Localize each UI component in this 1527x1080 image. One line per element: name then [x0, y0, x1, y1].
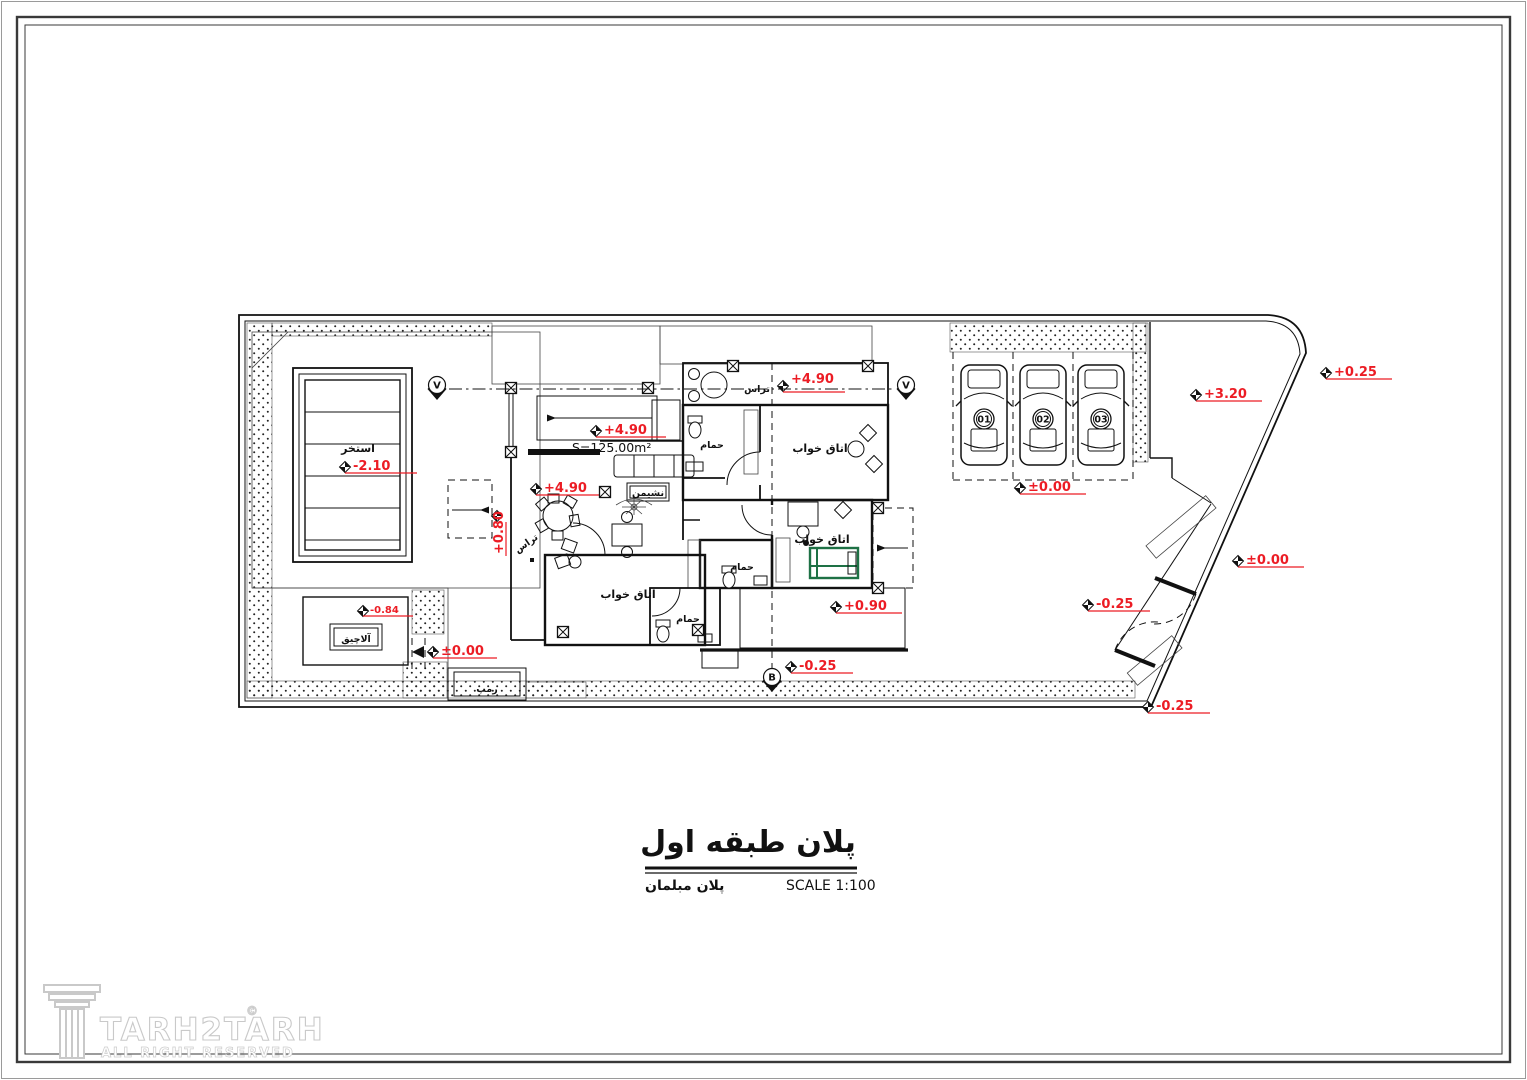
pool-label: استخر: [340, 442, 375, 455]
side-table: [612, 512, 642, 558]
logo-tagline: ALL RIGHT RESERVED: [101, 1046, 295, 1061]
gazebo-label: آلاچیق: [341, 632, 371, 645]
level-marker-south-yard: -0.25: [786, 659, 854, 674]
svg-text:-0.84: -0.84: [370, 605, 399, 616]
svg-text:V: V: [902, 381, 910, 392]
car-2: 02: [1015, 365, 1071, 465]
toilet-icon-top: [688, 416, 702, 438]
level-marker-entry-east: ±0.00: [1233, 553, 1305, 568]
logo-copyright: ©: [246, 1004, 258, 1018]
scale-label: SCALE 1:100: [786, 878, 876, 894]
stairs-right: [873, 508, 913, 588]
east-yard: +3.20 +0.25 ±0.00 -0.25 -0.25: [1083, 322, 1393, 714]
drawing-sheet: TARH2TARH © ALL RIGHT RESERVED ا: [0, 0, 1527, 1080]
section-lines: [449, 363, 894, 668]
sheet-title: پلان طبقه اول: [640, 825, 856, 860]
bedroom-bottom-furniture: [555, 538, 581, 568]
bath-top-label: حمام: [700, 440, 724, 451]
level-marker-parking: ±0.00: [1015, 480, 1087, 495]
svg-text:±0.00: ±0.00: [1246, 553, 1289, 568]
bedroom-top-label: اتاق خواب: [792, 442, 847, 455]
bedroom-top-furniture: [848, 425, 882, 473]
floor-plan-canvas: TARH2TARH © ALL RIGHT RESERVED ا: [0, 0, 1527, 1080]
car-3-number: 03: [1094, 415, 1107, 426]
upper-block: حمام اتاق خواب: [683, 405, 888, 500]
svg-text:+4.90: +4.90: [544, 481, 587, 496]
brand-logo: TARH2TARH © ALL RIGHT RESERVED: [44, 985, 325, 1061]
terrace-side-label: تراس: [513, 532, 540, 556]
svg-text:+0.25: +0.25: [1334, 365, 1377, 380]
svg-text:-0.25: -0.25: [1156, 699, 1193, 714]
level-marker-entry-mid: -0.25: [1083, 597, 1151, 612]
level-marker-side-stairs: +0.80: [492, 511, 508, 557]
car-1-number: 01: [977, 415, 990, 426]
level-marker-pool: -2.10: [340, 459, 418, 474]
svg-text:-2.10: -2.10: [353, 459, 390, 474]
level-marker-street-corner: +0.25: [1321, 365, 1393, 380]
swimming-pool: استخر -2.10: [293, 368, 417, 562]
svg-text:±0.00: ±0.00: [1028, 480, 1071, 495]
roof-terrace: تراس +4.90: [683, 363, 888, 405]
svg-text:+4.90: +4.90: [604, 423, 647, 438]
level-marker-dining: +4.90: [531, 481, 601, 496]
parking-area: 01 02 03 ±0.00: [953, 352, 1133, 495]
ramp-label: رمپ: [476, 684, 497, 695]
bedroom-middle-label: اتاق خواب: [794, 533, 849, 546]
svg-text:±0.00: ±0.00: [441, 644, 484, 659]
svg-text:+0.90: +0.90: [844, 599, 887, 614]
hall-bath-middle: حمام: [683, 500, 772, 588]
bedroom-middle: اتاق خواب: [742, 500, 872, 588]
level-marker-east-yard: +3.20: [1191, 387, 1263, 402]
svg-text:-0.25: -0.25: [1096, 597, 1133, 612]
car-1: 01: [956, 365, 1012, 465]
column-logo-icon: [44, 985, 100, 1058]
car-2-number: 02: [1036, 415, 1049, 426]
entry-door-lower: [1115, 622, 1158, 666]
bath-middle-label: حمام: [730, 562, 754, 573]
gazebo: آلاچیق -0.84: [303, 597, 413, 665]
section-marker-top-right: V: [897, 377, 916, 401]
title-block: پلان طبقه اول پلان مبلمان SCALE 1:100: [640, 825, 876, 894]
logo-brand-text: TARH2TARH: [100, 1012, 325, 1048]
bedroom-bottom-label: اتاق خواب: [600, 588, 655, 601]
round-dining-table: [535, 494, 580, 540]
car-3: 03: [1073, 365, 1129, 465]
svg-text:+4.90: +4.90: [791, 372, 834, 387]
svg-text:-0.25: -0.25: [799, 659, 836, 674]
patio: +0.90: [700, 588, 908, 668]
dining-terrace: +4.90 تراس: [513, 481, 600, 562]
toilet-icon-bottom: [656, 620, 670, 642]
living-room-label: نشیمن: [632, 488, 664, 499]
level-marker-patio: +0.90: [831, 599, 903, 614]
stairs-left: [448, 480, 492, 538]
svg-text:B: B: [768, 673, 776, 684]
sheet-subtitle: پلان مبلمان: [645, 878, 724, 894]
level-marker-gazebo: -0.84: [358, 605, 414, 617]
svg-text:V: V: [433, 381, 441, 392]
svg-text:+3.20: +3.20: [1204, 387, 1247, 402]
section-marker-top-left: V: [428, 377, 447, 401]
svg-text:+0.80: +0.80: [492, 511, 507, 554]
bath-bottom-label: حمام: [676, 614, 700, 625]
level-marker-court-entry: ±0.00: [428, 644, 498, 659]
